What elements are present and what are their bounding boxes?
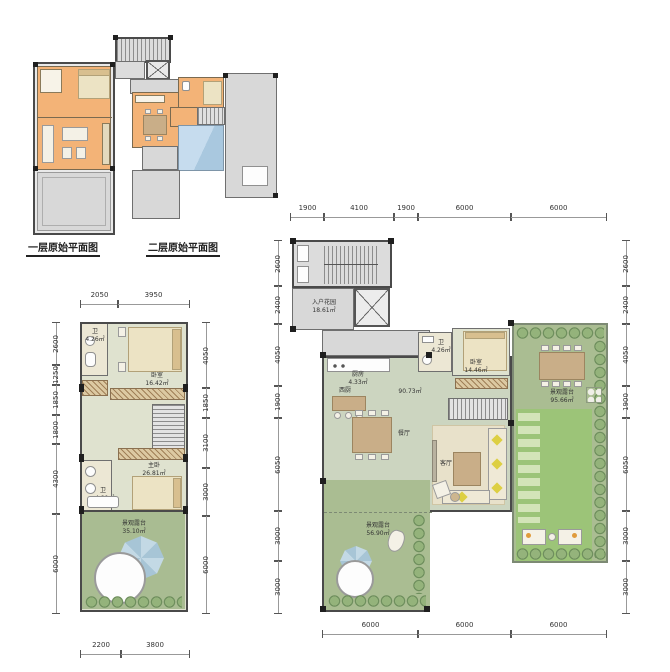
dim-plan4-right-2: 2400 <box>622 285 630 325</box>
plan3-dresser <box>118 448 185 460</box>
plan2-terrace-right <box>225 73 277 198</box>
chair <box>368 410 376 416</box>
chair <box>355 454 363 460</box>
plan1-caption: 一层原始平面图 <box>26 239 100 257</box>
plan4-bath: 卫4.26㎡ <box>418 332 452 372</box>
plan4-entry-garden-label: 入户花园18.61㎡ <box>301 299 347 315</box>
plan3-bedroom-label: 卧室16.42㎡ <box>137 372 177 388</box>
chair <box>563 381 571 387</box>
column <box>320 352 326 358</box>
plan2-terrace-bottom-b <box>132 170 180 219</box>
dim-plan4-left-6: 3000 <box>274 510 282 562</box>
column <box>320 478 326 484</box>
dim-plan3-left-4: 1800 <box>52 414 60 445</box>
plan1-orange-area <box>37 66 111 170</box>
stool <box>345 412 352 419</box>
plan3-stairs <box>152 404 185 450</box>
dim-plan3-bottom-2: 3800 <box>120 650 190 658</box>
column <box>79 384 84 392</box>
plan3-wardrobe <box>110 388 185 400</box>
dim-plan4-left-5: 6050 <box>274 417 282 512</box>
plan4-terrace-sw: 景观露台56.90㎡ <box>322 480 430 612</box>
plan4-bed-pillow <box>465 332 505 339</box>
plan4-hall-area-label: 90.73㎡ <box>390 388 430 396</box>
plan1-terrace-inner-border <box>42 177 106 226</box>
plan4-dining-label: 餐厅 <box>394 430 414 438</box>
dim-plan3-right-2: 1850 <box>202 387 210 419</box>
dim-plan3-bottom-1: 2200 <box>80 650 122 658</box>
plan1-terrace <box>37 172 111 231</box>
column <box>183 384 188 392</box>
column <box>183 506 188 514</box>
stool <box>334 412 341 419</box>
chair <box>574 345 582 351</box>
plan1-seat <box>62 147 72 159</box>
plan1-pillow <box>78 69 110 76</box>
plan2-hall <box>170 107 198 127</box>
column <box>320 606 326 612</box>
dim-plan4-right-3: 4050 <box>622 323 630 387</box>
dim-plan4-bottom-1: 6000 <box>322 630 419 638</box>
column <box>168 35 173 40</box>
plan4-stairwell <box>292 240 392 288</box>
plan3-terrace-label: 景观露台35.10㎡ <box>114 520 154 536</box>
dim-plan4-left-1: 2600 <box>274 240 282 287</box>
plan4-corridor <box>322 330 430 356</box>
chair <box>552 345 560 351</box>
plan3-bed-pillow <box>172 329 181 370</box>
dim-plan3-left-1: 2600 <box>52 322 60 366</box>
dim-plan4-top-2: 4100 <box>323 213 395 221</box>
west-kitchen-island <box>332 396 366 411</box>
chair <box>541 381 549 387</box>
column <box>273 73 278 78</box>
dim-plan4-top-5: 6000 <box>510 213 607 221</box>
plan1-tv-console <box>102 123 110 165</box>
plan4-west-kitchen-label: 西厨 <box>332 387 358 395</box>
plan2-stair-landing <box>115 61 145 79</box>
nightstand <box>118 327 126 337</box>
bush-row <box>328 594 426 608</box>
column <box>290 238 296 244</box>
orange-cushion <box>572 533 577 538</box>
plan2-outline <box>113 33 295 233</box>
plan3-terrace: 景观露台35.10㎡ <box>82 510 185 609</box>
dim-plan3-top-2: 3950 <box>117 300 190 308</box>
plan3-bath-top-label: 卫4.26㎡ <box>83 328 107 344</box>
column <box>290 326 296 332</box>
dim-plan3-left-3: 1850 <box>52 384 60 416</box>
bush-row <box>516 547 604 561</box>
plan2-glass-roof <box>178 125 224 171</box>
dim-plan3-top-1: 2050 <box>80 300 119 308</box>
plan4-terrace-e: 景观露台95.66㎡ <box>512 323 608 563</box>
chair <box>381 410 389 416</box>
plan4-entry-garden: 入户花园18.61㎡ <box>292 288 354 330</box>
spa-tub <box>336 560 374 598</box>
stair-divider <box>324 264 378 265</box>
dim-plan4-right-4: 1900 <box>622 385 630 419</box>
plan4-stairs <box>448 398 508 420</box>
plan1-seat <box>76 147 86 159</box>
dim-plan3-right-3: 3100 <box>202 417 210 469</box>
dim-plan4-right-6: 3000 <box>622 510 630 562</box>
plan4-bedroom: 卧室14.46㎡ <box>452 328 510 376</box>
plan4-outline: 入户花园18.61㎡ 厨房4.33㎡ 西厨 90.73㎡ <box>290 240 610 614</box>
dim-plan4-top-3: 1900 <box>393 213 419 221</box>
column <box>424 606 430 612</box>
dim-plan3-left-2: 1250 <box>52 364 60 386</box>
plan2-dining-table <box>143 115 167 135</box>
nightstand <box>118 362 126 372</box>
chair <box>381 454 389 460</box>
plan3-master-pillow <box>173 478 181 508</box>
dim-plan4-left-4: 1900 <box>274 385 282 419</box>
plan2-chair <box>145 136 151 141</box>
column <box>33 62 38 67</box>
plan2-elevator <box>146 60 170 80</box>
plan2-bath-fixture <box>182 81 190 91</box>
plan4-elevator <box>354 288 390 327</box>
bush-row <box>85 595 182 609</box>
dim-plan4-left-3: 4050 <box>274 323 282 387</box>
toilet <box>85 352 96 367</box>
plan4-bedroom-label: 卧室14.46㎡ <box>459 359 493 375</box>
stepping-stones <box>586 387 602 403</box>
dim-plan4-right-1: 2600 <box>622 240 630 287</box>
plan2-chair <box>157 136 163 141</box>
chair <box>574 381 582 387</box>
dim-plan4-bottom-2: 6000 <box>417 630 512 638</box>
dim-plan4-bottom-3: 6000 <box>510 630 607 638</box>
column <box>113 35 118 40</box>
kitchen-counter <box>327 358 390 372</box>
plan2-caption: 二层原始平面图 <box>146 239 220 257</box>
stair-treads <box>324 246 378 284</box>
plan1-outline <box>33 62 115 235</box>
toilet <box>85 466 96 477</box>
paver-strip <box>518 413 540 523</box>
dim-plan4-right-5: 6050 <box>622 417 630 512</box>
bathtub <box>87 496 119 508</box>
column <box>183 454 188 462</box>
bush-col <box>412 514 426 594</box>
dim-plan3-left-6: 6000 <box>52 513 60 614</box>
plan2-chair <box>145 109 151 114</box>
plan1-room-divider <box>38 117 112 118</box>
column <box>33 166 38 171</box>
plan1-bath <box>40 69 62 93</box>
plan4-kitchen-label: 厨房4.33㎡ <box>338 371 378 387</box>
plan2-bedroom <box>178 77 224 108</box>
dim-plan4-left-2: 2400 <box>274 285 282 325</box>
dim-plan3-right-1: 4050 <box>202 322 210 389</box>
plan2-stairs <box>197 107 225 125</box>
tv-console <box>432 440 437 482</box>
bush-col <box>593 340 607 558</box>
floorplan-sheet: 一层原始平面图 二层原始平面图 <box>0 0 670 672</box>
orange-cushion <box>526 533 531 538</box>
plan2-terrace-bottom-a <box>142 146 178 170</box>
plan4-terrace-e-label: 景观露台95.66㎡ <box>542 389 582 405</box>
chair <box>563 345 571 351</box>
outdoor-dining-table <box>539 352 585 380</box>
coffee-table <box>453 452 481 486</box>
chair <box>368 454 376 460</box>
dim-plan4-left-7: 3000 <box>274 560 282 614</box>
column <box>223 73 228 78</box>
plan1-sofa <box>42 125 54 163</box>
plan2-counter <box>135 95 165 103</box>
plan2-chair <box>157 109 163 114</box>
chair <box>552 381 560 387</box>
dim-plan4-top-4: 6000 <box>417 213 512 221</box>
chair <box>355 410 363 416</box>
column <box>508 320 514 326</box>
plan4-bath-label: 卫4.26㎡ <box>431 339 451 355</box>
pouf <box>450 492 460 502</box>
column <box>79 454 84 462</box>
closet <box>297 266 309 283</box>
dim-plan3-left-5: 4300 <box>52 443 60 515</box>
closet <box>297 245 309 262</box>
column <box>426 352 432 358</box>
plan2-bed <box>203 81 222 105</box>
plan2-terrace-pad <box>242 166 268 186</box>
plan4-wardrobe <box>455 378 508 389</box>
plan1-table <box>62 127 88 141</box>
chair <box>541 345 549 351</box>
outdoor-sofa <box>558 529 582 545</box>
column <box>388 238 394 244</box>
burners <box>331 362 347 370</box>
plan3-outline: 卫4.26㎡ 卧室16.42㎡ 主卧26.81㎡ 卫4.80㎡ <box>80 322 188 612</box>
dim-plan3-right-4: 3000 <box>202 467 210 517</box>
dining-table <box>352 417 392 453</box>
column <box>508 420 514 426</box>
dim-plan3-right-5: 6000 <box>202 515 210 614</box>
dim-plan4-right-7: 3000 <box>622 560 630 614</box>
bush-row <box>516 326 604 340</box>
column <box>79 506 84 514</box>
plan4-living-label: 客厅 <box>438 460 454 468</box>
plan3-closet <box>82 380 108 396</box>
dim-plan4-top-1: 1900 <box>290 213 325 221</box>
outdoor-table <box>548 533 556 541</box>
terrace-boundary-dashed <box>324 512 432 513</box>
column <box>273 193 278 198</box>
